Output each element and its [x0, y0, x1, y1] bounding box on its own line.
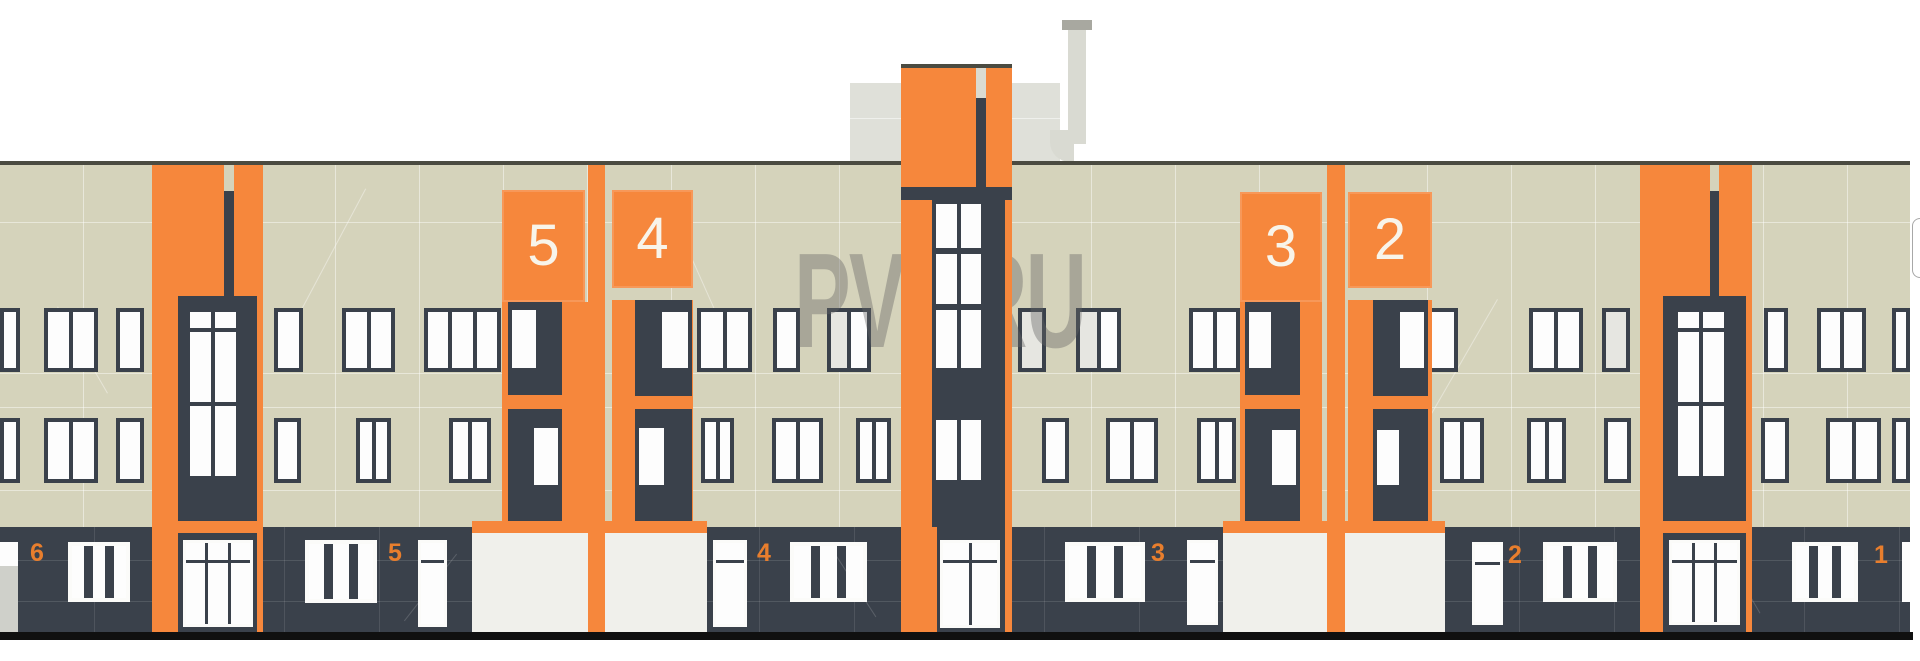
stairwell-window — [1674, 308, 1728, 480]
window — [772, 418, 823, 483]
entrance-number-6: 6 — [30, 541, 44, 566]
tower-window — [512, 310, 536, 368]
window — [424, 308, 501, 372]
tower-window — [936, 420, 981, 480]
window — [0, 308, 20, 372]
divider-strip-ground — [588, 533, 605, 632]
window — [0, 418, 20, 483]
storefront-window — [1543, 542, 1617, 602]
window — [1826, 418, 1881, 483]
tower-window — [1249, 312, 1271, 368]
stair-tower-left — [152, 165, 263, 303]
storefront-window — [1065, 542, 1145, 602]
tower-window — [1377, 430, 1399, 485]
window — [1428, 308, 1458, 372]
entrance-header — [1663, 521, 1746, 533]
window — [1764, 308, 1788, 372]
window — [274, 418, 301, 483]
elevation-canvas: 5 4 3 2 6 5 4 3 2 1 PVT.RU — [0, 0, 1920, 661]
entrance-door — [183, 540, 253, 627]
storefront-window — [1792, 542, 1858, 602]
tower-window — [1272, 430, 1296, 485]
window — [1189, 308, 1240, 372]
section-number: 2 — [1374, 211, 1406, 269]
storefront-glass — [605, 533, 707, 632]
tower-window — [936, 204, 981, 248]
door-with-transom — [418, 540, 447, 627]
storefront-window — [790, 542, 867, 602]
window — [697, 308, 752, 372]
entrance-door — [1669, 540, 1740, 625]
window — [342, 308, 395, 372]
window — [1529, 308, 1583, 372]
section-panel-5: 5 — [502, 190, 585, 302]
window — [1604, 418, 1631, 483]
door-with-transom — [713, 540, 747, 627]
section-number: 3 — [1265, 218, 1297, 276]
entrance-header — [178, 521, 257, 533]
storefront-glass — [472, 533, 588, 632]
window — [44, 308, 98, 372]
entrance-number-1: 1 — [1874, 543, 1888, 568]
window — [1042, 418, 1069, 483]
side-door-glass — [0, 542, 18, 566]
tower-window — [662, 312, 688, 368]
window — [1197, 418, 1236, 483]
tower-window — [936, 254, 981, 304]
section-panel-4: 4 — [612, 190, 693, 288]
storefront-header — [472, 521, 707, 533]
window — [1602, 308, 1630, 372]
divider-strip-ground — [1327, 533, 1345, 632]
tower-slot — [1710, 165, 1719, 191]
entrance-number-3: 3 — [1151, 541, 1165, 566]
window — [856, 418, 891, 483]
stairwell-window — [186, 308, 240, 480]
window — [701, 418, 734, 483]
side-door-panel — [0, 566, 18, 632]
storefront-glass — [1345, 533, 1445, 632]
door-with-transom — [1187, 540, 1218, 625]
tower-slot — [1710, 191, 1719, 303]
window — [1527, 418, 1566, 483]
central-tower-right-edge — [1005, 200, 1012, 632]
chimney-pipe — [1068, 30, 1086, 144]
window — [1761, 418, 1789, 483]
window — [1892, 418, 1910, 483]
window — [1892, 308, 1910, 372]
section-number: 4 — [636, 210, 668, 268]
storefront-edge-pane — [1902, 542, 1910, 602]
window — [274, 308, 303, 372]
door-with-transom — [1472, 542, 1503, 625]
central-tower-ground — [901, 527, 937, 632]
stair-tower-left-strip — [257, 303, 263, 632]
central-tower-left-strip — [901, 200, 932, 527]
storefront-window — [68, 542, 130, 602]
window — [1440, 418, 1484, 483]
stair-tower-right — [1640, 165, 1752, 303]
chimney-cap — [1062, 20, 1092, 30]
section-panel-2: 2 — [1348, 192, 1432, 288]
storefront-window — [305, 540, 377, 603]
section-panel-3: 3 — [1240, 192, 1322, 302]
tower-window — [936, 310, 981, 368]
central-tower-slot — [976, 98, 986, 187]
central-tower-right-strip — [985, 200, 1005, 527]
entrance-door — [940, 540, 1000, 628]
window — [356, 418, 391, 483]
tower-slot — [224, 165, 234, 191]
window — [44, 418, 98, 483]
tower-window — [534, 428, 558, 485]
stair-tower-left-strip — [152, 303, 178, 632]
window — [1817, 308, 1866, 372]
storefront-glass — [1223, 533, 1327, 632]
central-tower-top — [901, 68, 1012, 200]
tower-window — [1400, 312, 1424, 368]
tower-slot — [224, 191, 234, 303]
window — [1106, 418, 1158, 483]
stair-tower-right-strip — [1640, 303, 1663, 632]
scrollbar-thumb[interactable] — [1912, 218, 1920, 278]
window — [116, 308, 144, 372]
central-tower-band — [901, 187, 1012, 200]
entrance-number-4: 4 — [757, 541, 771, 566]
tower-window — [639, 428, 664, 485]
entrance-number-5: 5 — [388, 541, 402, 566]
stair-tower-right-strip — [1746, 303, 1752, 632]
section-number: 5 — [527, 217, 559, 275]
ground-line — [0, 632, 1913, 640]
window — [449, 418, 491, 483]
storefront-header — [1223, 521, 1445, 533]
entrance-number-2: 2 — [1508, 543, 1522, 568]
window — [116, 418, 144, 483]
central-tower-slot — [976, 68, 986, 98]
